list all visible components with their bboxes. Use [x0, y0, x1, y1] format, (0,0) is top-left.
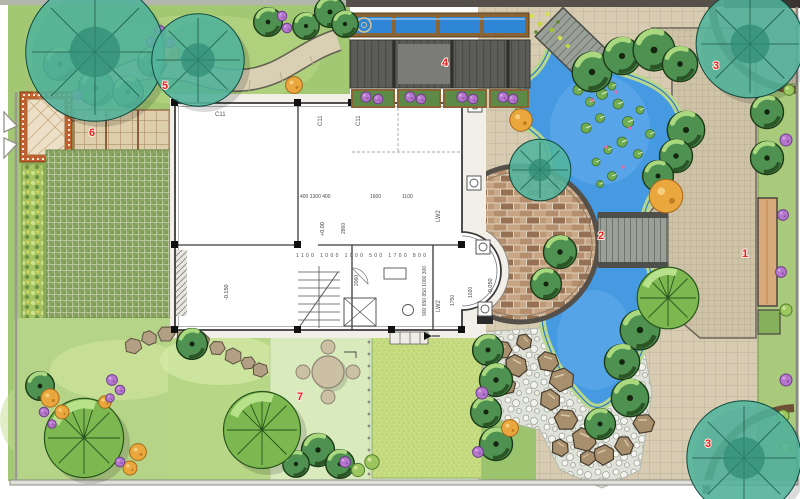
zone-label-bridge: 2 — [598, 230, 604, 242]
dim-text: 1750 — [450, 295, 456, 306]
window-tag: LW2 — [436, 299, 442, 312]
dim-text: 900 650 650 1000 300 — [422, 266, 428, 316]
pergola-deck — [350, 40, 530, 88]
water-channel — [349, 13, 529, 37]
dim-text: 400 1300 400 — [300, 194, 331, 200]
dim-text: 2860 — [341, 223, 347, 234]
bridge — [598, 212, 668, 268]
grass-grid-court — [46, 150, 170, 318]
zone-label-plaza: 1 — [742, 248, 748, 260]
bench-long — [758, 198, 777, 306]
window-tag: C11 — [318, 115, 324, 126]
zone-label-path: 5 — [162, 80, 168, 92]
zone-label-seating: 7 — [297, 391, 303, 403]
house: C11 C11 C11 LW2 LW2 +0.00 -0.150 -0.050 … — [171, 98, 501, 344]
plan-drawing: C11 C11 C11 LW2 LW2 +0.00 -0.150 -0.050 … — [0, 0, 800, 499]
zone-label-pergola: 4 — [442, 57, 449, 69]
dim-text: 1100 — [402, 194, 413, 200]
level-porch: -0.150 — [224, 284, 230, 300]
fountain-icon — [357, 18, 371, 32]
dim-text: 1020 — [468, 287, 474, 298]
planter-box-east — [758, 310, 780, 334]
window-tag: C11 — [356, 115, 362, 126]
dim-text: 2060 — [354, 275, 360, 286]
wall-bottom — [10, 480, 798, 485]
zone-label-corner-top: 3 — [713, 60, 719, 72]
landscape-plan: C11 C11 C11 LW2 LW2 +0.00 -0.150 -0.050 … — [0, 0, 800, 499]
lawn-south — [372, 336, 482, 478]
zone-label-paving: 6 — [89, 127, 95, 139]
window-tag: LW2 — [436, 209, 442, 222]
level-bay: -0.050 — [488, 278, 494, 294]
dim-text: 1600 — [370, 194, 381, 200]
window-tag: C11 — [215, 112, 226, 118]
level-main: +0.00 — [320, 222, 326, 236]
dim-text: 1100 1000 1000 500 1700 800 — [296, 253, 426, 259]
zone-label-corner-bottom: 3 — [705, 438, 711, 450]
